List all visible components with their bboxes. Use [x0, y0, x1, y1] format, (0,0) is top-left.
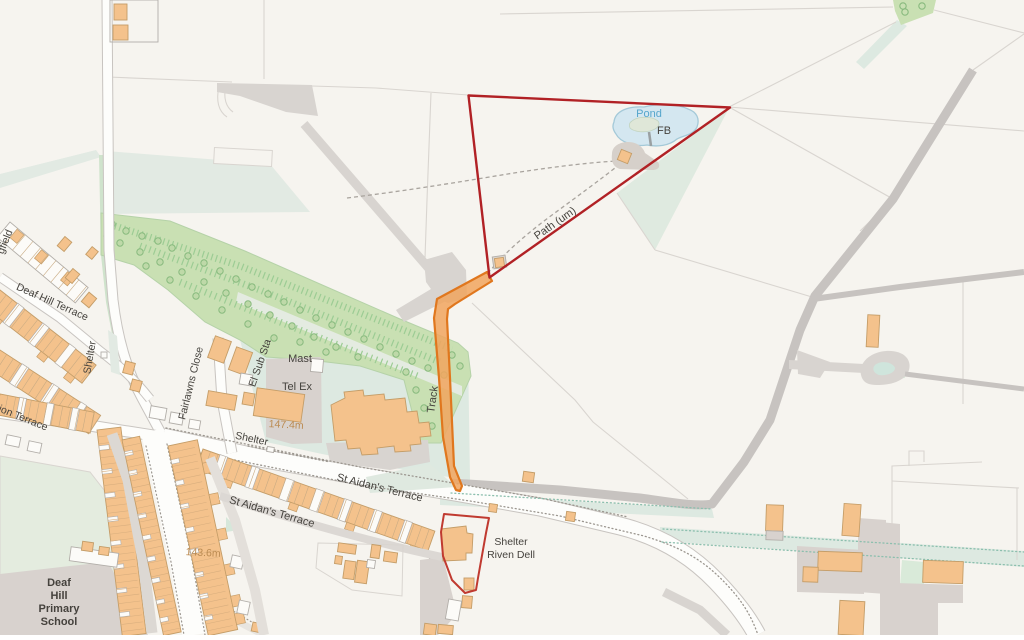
svg-text:Tel Ex: Tel Ex [282, 381, 312, 393]
svg-text:Mast: Mast [288, 353, 312, 365]
svg-text:Riven Dell: Riven Dell [487, 549, 535, 561]
svg-text:Shelter: Shelter [494, 536, 528, 548]
svg-text:147.4m: 147.4m [268, 418, 304, 432]
svg-text:FB: FB [657, 125, 671, 137]
svg-text:143.6m: 143.6m [185, 546, 221, 560]
svg-text:Pond: Pond [636, 108, 662, 120]
